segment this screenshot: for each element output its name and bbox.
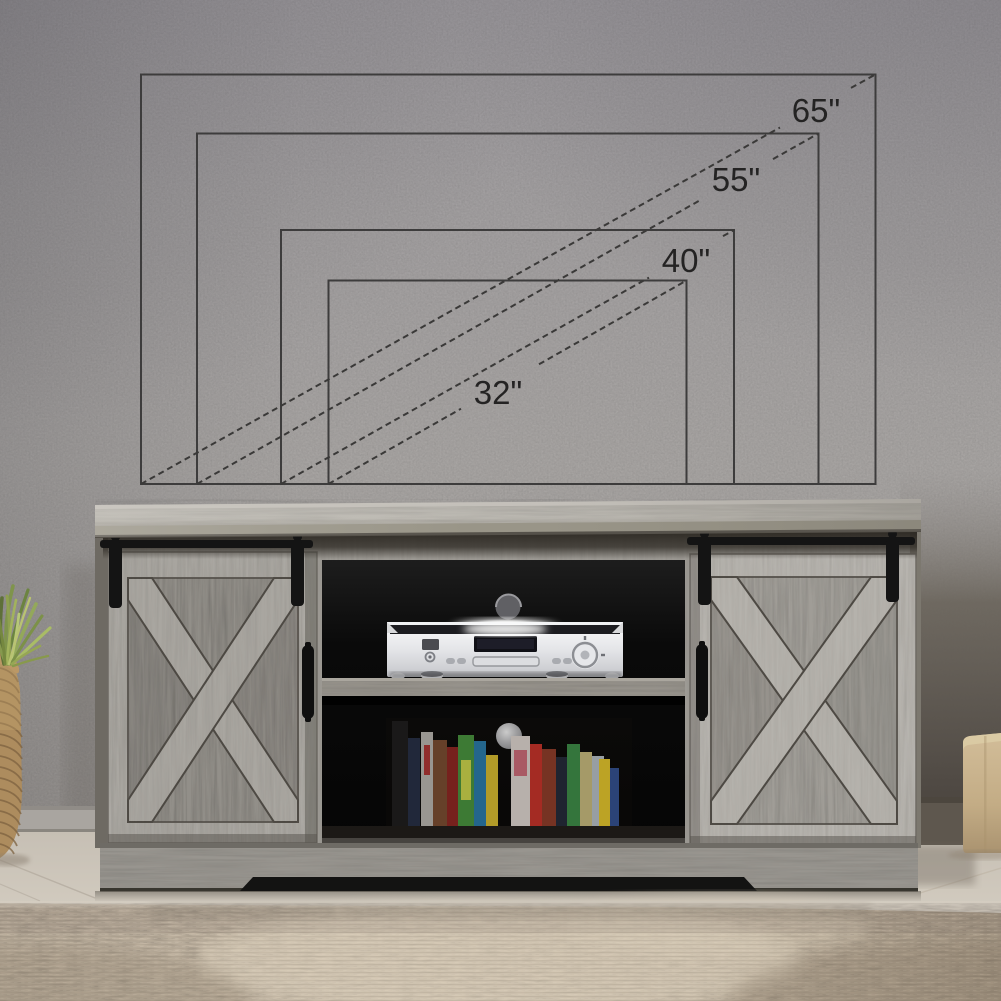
svg-text:65": 65" bbox=[792, 92, 840, 129]
svg-text:40": 40" bbox=[662, 242, 710, 279]
svg-text:32": 32" bbox=[474, 374, 522, 411]
svg-text:55": 55" bbox=[712, 161, 760, 198]
